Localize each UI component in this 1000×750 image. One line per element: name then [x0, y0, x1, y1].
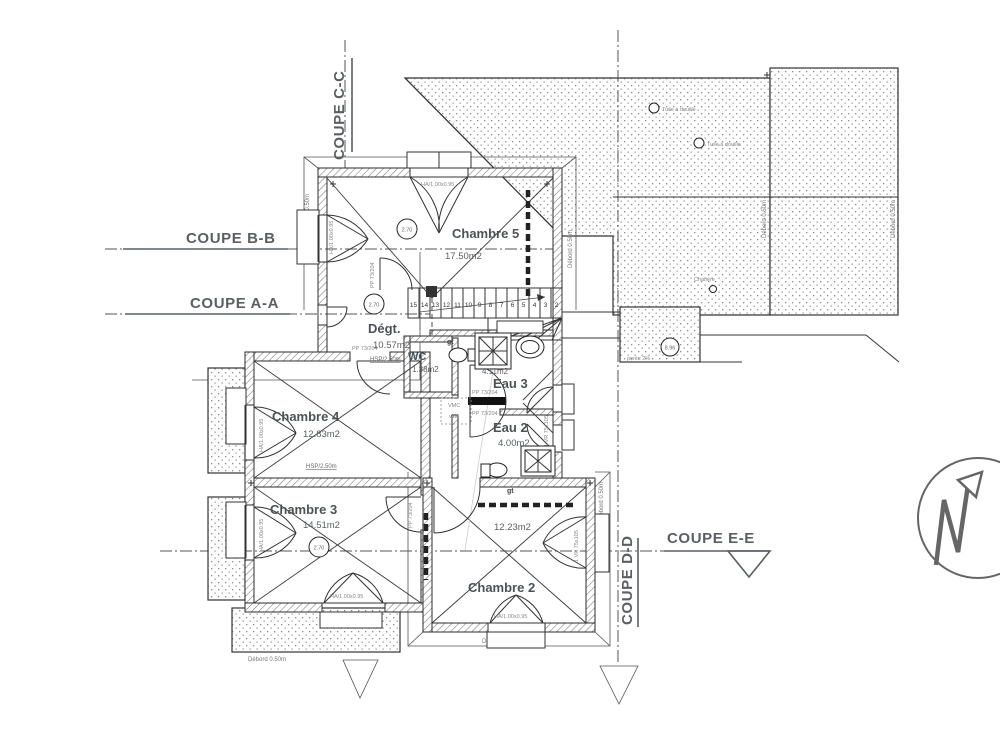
roof-vent-small-icon — [710, 286, 717, 293]
window-label: HA/1.00x0.95 — [329, 221, 335, 254]
overhang-label: Débord 0.50m — [762, 200, 768, 238]
room-eau3-area: 4.11m2 — [482, 367, 509, 376]
coupe-cc-label: COUPE C-C — [331, 70, 348, 160]
toilet-icon — [449, 348, 467, 362]
window-label: HA/1.00x0.95 — [259, 419, 265, 452]
stair-number: 6 — [511, 302, 515, 309]
overhang-label: Débord 0.50m — [891, 200, 897, 238]
room-eau3-name: Eau 3 — [493, 376, 528, 391]
slope-label: pente 2% — [627, 356, 650, 362]
gt-label: gt — [447, 339, 454, 346]
room-chambre4-hsp: HSP/2.50m — [306, 464, 337, 470]
window-label: HA/1.00x0.95 — [330, 594, 363, 600]
stair-number: 9 — [478, 302, 482, 309]
roof-vent-label: Tuile à douille — [707, 142, 741, 148]
room-eau2-area: 4.00m2 — [498, 438, 530, 449]
room-degt-name: Dégt. — [368, 321, 401, 336]
roof-vent-label: Tuile à douille — [662, 107, 696, 113]
room-chambre4-area: 12.83m2 — [303, 429, 340, 440]
roof-vent-icon — [649, 103, 659, 113]
stair-number: 2 — [555, 302, 559, 309]
coupe-dd-label: COUPE D-D — [619, 535, 636, 625]
room-chambre4-name: Chambre 4 — [272, 409, 340, 424]
overhang-label: Débord 0.50m — [248, 657, 286, 663]
roof-level-value: 8.96 — [665, 346, 676, 352]
stair-number: 5 — [522, 302, 526, 309]
ceiling-height: 2.70 — [369, 303, 380, 309]
coupe-bb-label: COUPE B-B — [186, 230, 276, 247]
stair-number: 13 — [432, 302, 440, 309]
window-label: HA/1.00x0.95 — [494, 614, 527, 620]
stair-number: 3 — [544, 302, 548, 309]
stair-post — [426, 286, 437, 297]
room-chambre2-area: 12.23m2 — [494, 522, 531, 533]
room-eau2-name: Eau 2 — [493, 420, 528, 435]
window-label: 1 VR 75x105 — [544, 415, 550, 447]
stair-number: 4 — [533, 302, 537, 309]
room-chambre3-name: Chambre 3 — [270, 502, 337, 517]
coupe-ee-label: COUPE E-E — [667, 530, 755, 547]
vmc-label: VMC — [448, 403, 460, 409]
coupe-aa-label: COUPE A-A — [190, 295, 279, 312]
vide-label: vide — [449, 414, 459, 420]
stair-number: 14 — [421, 302, 429, 309]
stair-number: 15 — [410, 302, 418, 309]
roof-area-top-right: Tuile à douille Tuile à douille Chatière… — [405, 68, 898, 315]
room-chambre3-area: 14.51m2 — [303, 520, 340, 531]
door-label: PP 73/204 — [370, 262, 376, 288]
window-label: HA/1.00x0.95 — [421, 182, 454, 188]
ceiling-height: 2.70 — [402, 228, 413, 234]
roof-vent-small-label: Chatière — [694, 277, 715, 283]
door-label: PP 73/204 — [472, 411, 498, 417]
stair-number: 12 — [443, 302, 451, 309]
room-wc-name: WC — [408, 351, 426, 363]
room-chambre2-name: Chambre 2 — [468, 580, 535, 595]
window-label: 1 VR 75x105 — [574, 530, 580, 562]
door-leaf — [468, 397, 506, 405]
room-degt-hsp: HSP/2.50m — [370, 357, 401, 363]
floor-plan-canvas: Tuile à douille Tuile à douille Chatière… — [0, 0, 1000, 750]
window-label: HA/1.00x0.95 — [259, 519, 265, 552]
overhang-label: Débord 0.50m — [568, 230, 574, 268]
room-wc-area: 1.38m2 — [412, 365, 439, 374]
room-labels: Chambre 5 17.50m2 Dégt. 10.57m2 HSP/2.50… — [270, 219, 535, 595]
room-chambre5-area: 17.50m2 — [445, 251, 482, 262]
room-chambre5-name: Chambre 5 — [452, 226, 519, 241]
north-arrow — [918, 458, 1000, 578]
floor-plan-drawing: Tuile à douille Tuile à douille Chatière… — [0, 0, 1000, 750]
roof-vent-icon — [694, 138, 704, 148]
door-label: PP 73/204 — [408, 502, 414, 528]
ceiling-height: 2.70 — [314, 546, 325, 552]
toilet-tank — [481, 464, 490, 477]
room-degt-area: 10.57m2 — [373, 340, 410, 351]
stair-number: 7 — [500, 302, 504, 309]
gt-label: gt — [507, 488, 514, 495]
